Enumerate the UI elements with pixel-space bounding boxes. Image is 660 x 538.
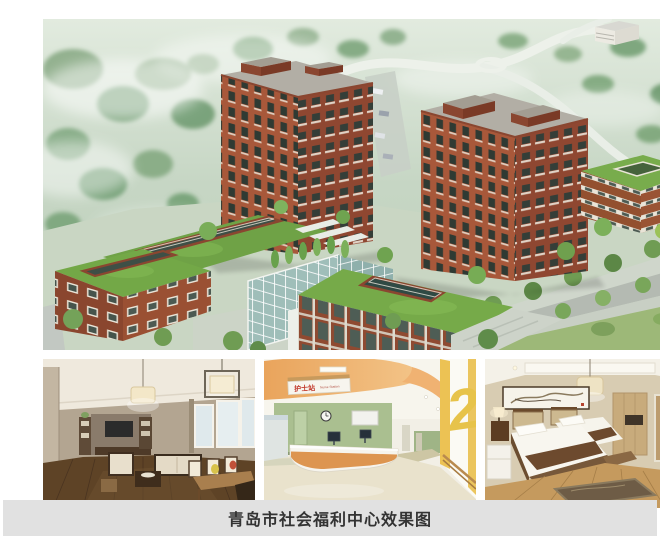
room-door [655,395,660,461]
aerial-rendering-image [43,19,660,350]
wall-niche [625,415,643,425]
side-partition [264,417,288,461]
flowers [211,464,219,474]
ceiling-light [320,367,346,372]
floor-number: 2 [448,375,476,444]
caption-bar: 青岛市社会福利中心效果图 [3,500,657,536]
nurse-station-image: 护士站 Nurse Station 2 [264,359,476,508]
side-shelf [79,412,91,455]
aerial-rendering-photo [43,19,660,350]
notice-board [352,411,378,425]
armchair [109,453,133,475]
page: { "caption": { "text": "青岛市社会福利中心效果图" },… [0,0,660,538]
nightstand [490,407,509,441]
mini-cabinet [487,445,511,479]
living-room-image [43,359,255,508]
bedroom-image [485,359,660,508]
tv-wall [91,414,152,455]
curtain [189,399,194,453]
door [294,411,307,445]
nurse-station-sign: 护士站 Nurse Station [288,374,351,394]
nurse-station-photo: 护士站 Nurse Station 2 [264,359,476,508]
bedroom-photo [485,359,660,508]
caption-text: 青岛市社会福利中心效果图 [228,506,432,530]
stool [101,479,117,492]
tv [105,421,133,437]
living-room-photo [43,359,255,508]
artwork [503,387,589,409]
